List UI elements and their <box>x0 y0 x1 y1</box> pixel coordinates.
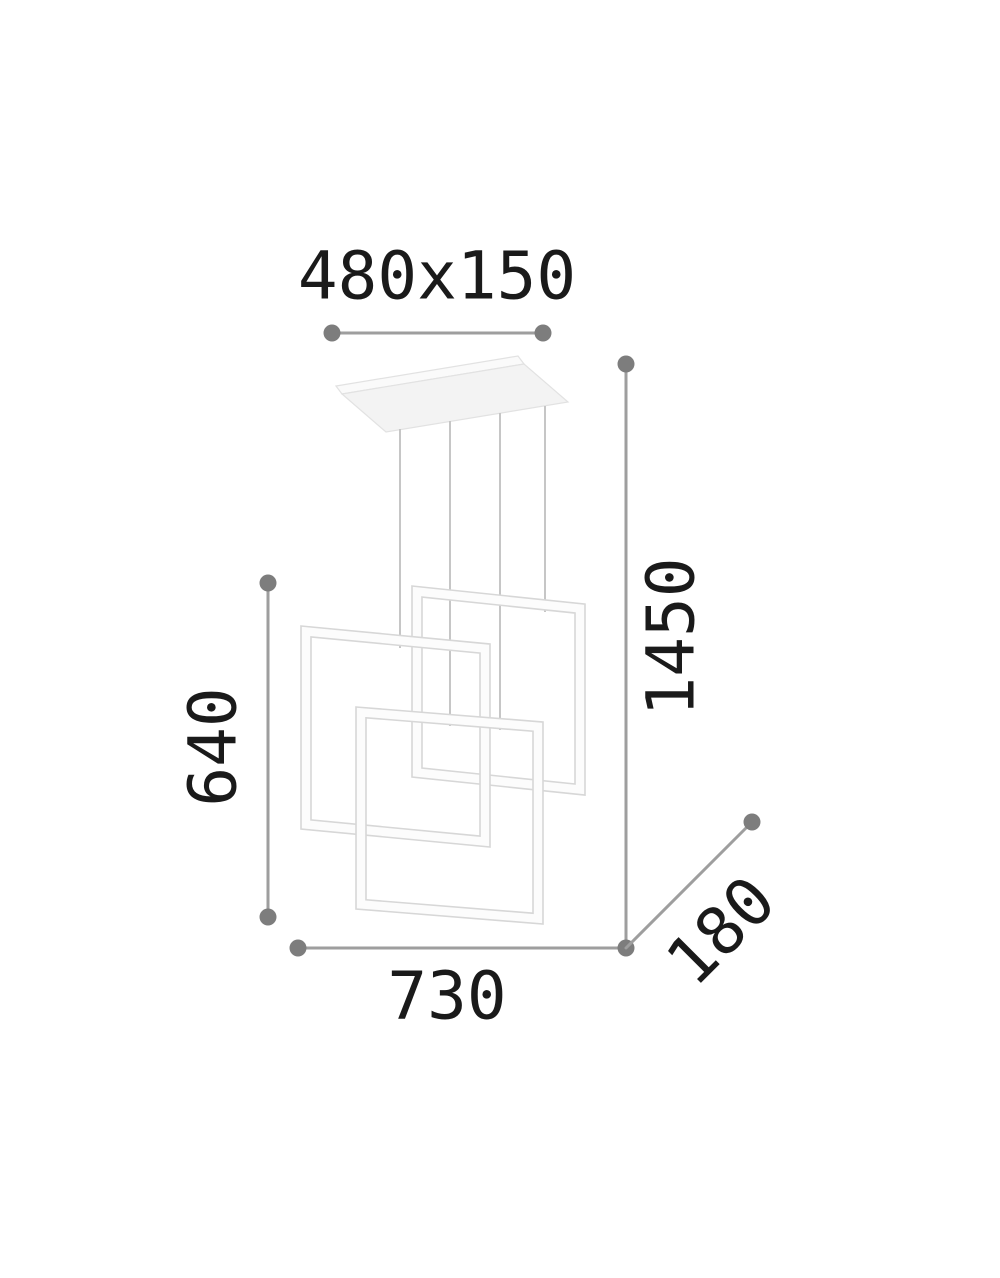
dimension-label-fixture-height: 640 <box>175 687 252 806</box>
square-frame-middle <box>301 626 490 847</box>
dimension-label-canopy-size: 480x150 <box>298 238 576 315</box>
square-frame-front <box>356 707 543 924</box>
dimension-endpoint-dot <box>260 575 277 592</box>
dimension-endpoint-dot <box>290 940 307 957</box>
dimension-diagram-page: 480x150 1450 640 730 180 <box>0 0 1000 1278</box>
dimension-endpoint-dot <box>744 814 761 831</box>
lamp-canopy <box>336 356 568 432</box>
dimension-overall-height: 1450 <box>618 356 710 949</box>
dimension-label-overall-height: 1450 <box>633 558 710 717</box>
pendant-lamp-dimension-diagram: 480x150 1450 640 730 180 <box>0 0 1000 1278</box>
dimension-endpoint-dot <box>324 325 341 342</box>
dimension-depth: 180 <box>626 814 790 1001</box>
dimension-label-width: 730 <box>387 958 506 1035</box>
dimension-label-depth: 180 <box>652 862 791 1001</box>
dimension-endpoint-dot <box>535 325 552 342</box>
dimension-canopy-size: 480x150 <box>298 238 576 342</box>
square-frame-back <box>412 586 585 795</box>
dimension-endpoint-dot <box>260 909 277 926</box>
dimension-fixture-height: 640 <box>175 575 277 926</box>
dimension-width: 730 <box>290 940 635 1035</box>
dimension-endpoint-dot <box>618 356 635 373</box>
